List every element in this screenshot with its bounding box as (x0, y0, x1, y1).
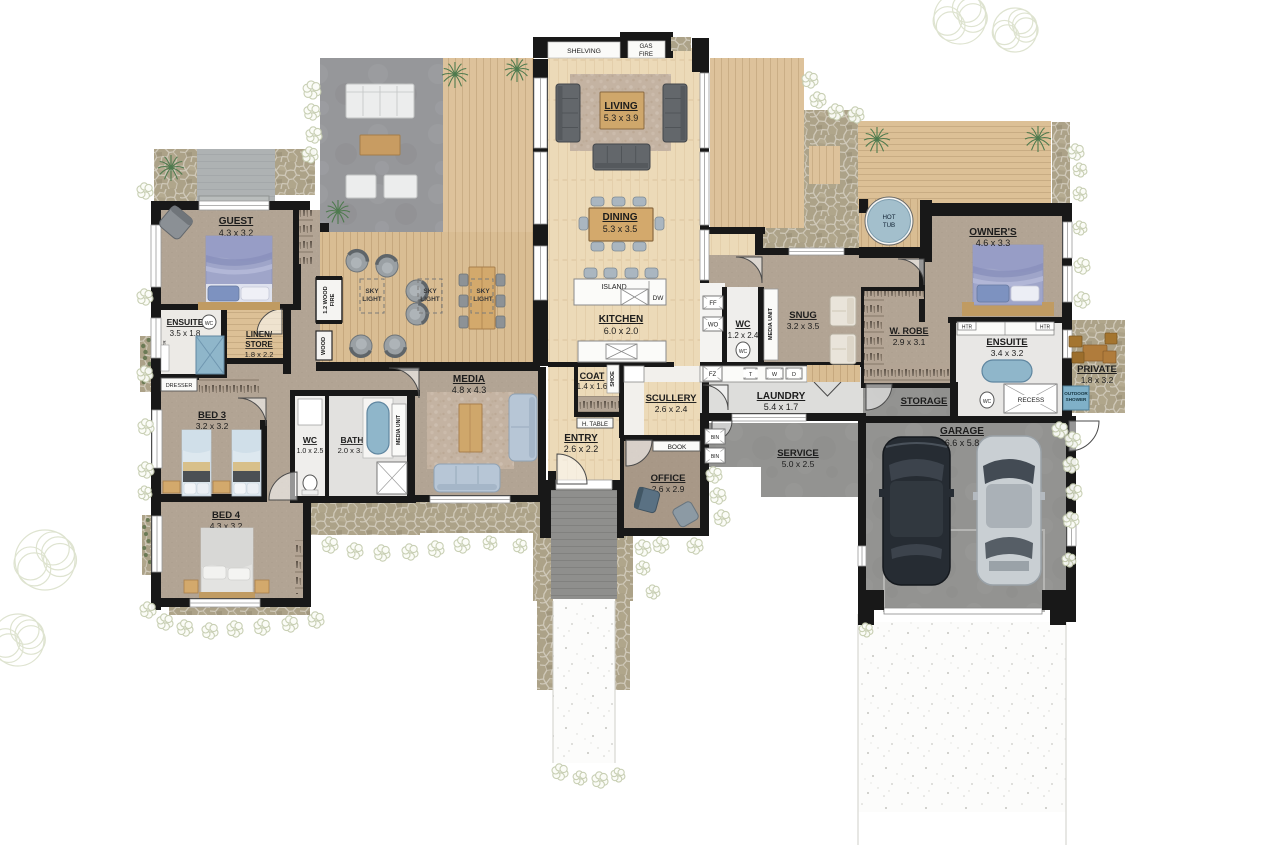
svg-text:FZ: FZ (709, 372, 717, 378)
svg-text:5.4 x 1.7: 5.4 x 1.7 (764, 402, 799, 412)
svg-text:WC: WC (983, 399, 992, 405)
svg-text:SNUG: SNUG (789, 310, 816, 321)
svg-text:BIN: BIN (711, 454, 720, 460)
svg-text:TUB: TUB (883, 222, 895, 229)
svg-text:4.6 x 3.3: 4.6 x 3.3 (976, 238, 1011, 248)
svg-text:4.8 x 4.3: 4.8 x 4.3 (452, 385, 487, 395)
svg-text:ENSUITE: ENSUITE (986, 337, 1027, 348)
svg-text:MEDIA: MEDIA (453, 374, 485, 385)
svg-text:COAT: COAT (580, 371, 605, 381)
svg-text:BED 3: BED 3 (198, 410, 226, 421)
svg-text:BOOK: BOOK (668, 444, 687, 451)
svg-text:GUEST: GUEST (219, 216, 253, 227)
svg-text:1.0 x 2.5: 1.0 x 2.5 (297, 448, 324, 455)
svg-text:WC: WC (205, 321, 214, 327)
svg-text:BATH: BATH (341, 435, 364, 445)
svg-text:SKY: SKY (423, 288, 437, 295)
svg-text:6.0 x 2.0: 6.0 x 2.0 (604, 326, 639, 336)
svg-text:PRIVATE: PRIVATE (1077, 364, 1117, 375)
svg-text:ENSUITE: ENSUITE (167, 317, 204, 327)
svg-text:1.2 x 2.4: 1.2 x 2.4 (728, 331, 759, 340)
svg-text:BED 4: BED 4 (212, 510, 241, 521)
svg-text:OFFICE: OFFICE (651, 473, 686, 484)
svg-text:W: W (772, 372, 778, 378)
svg-text:6.6 x 5.8: 6.6 x 5.8 (945, 438, 980, 448)
svg-text:STORAGE: STORAGE (901, 396, 948, 407)
svg-text:H. TABLE: H. TABLE (582, 422, 608, 428)
svg-text:5.3 x 3.9: 5.3 x 3.9 (604, 113, 639, 123)
svg-text:FIRE: FIRE (639, 51, 653, 58)
svg-text:KITCHEN: KITCHEN (599, 314, 643, 325)
svg-text:LIGHT: LIGHT (420, 296, 440, 303)
svg-text:SHELVING: SHELVING (567, 48, 601, 55)
svg-text:5.3 x 3.5: 5.3 x 3.5 (603, 224, 638, 234)
svg-text:GAS: GAS (639, 43, 652, 50)
svg-text:SKY: SKY (476, 288, 490, 295)
svg-text:STORE: STORE (245, 340, 273, 349)
svg-text:WC: WC (736, 319, 751, 329)
svg-text:MEDIA UNIT: MEDIA UNIT (396, 414, 402, 445)
svg-text:DRESSER: DRESSER (166, 383, 193, 389)
svg-text:OWNER'S: OWNER'S (969, 227, 1017, 238)
svg-text:WC: WC (739, 349, 748, 355)
svg-text:SERVICE: SERVICE (777, 448, 819, 459)
svg-text:WOOD: WOOD (321, 337, 327, 355)
svg-text:1.2 WOOD: 1.2 WOOD (323, 286, 329, 313)
svg-text:FIRE: FIRE (330, 293, 336, 306)
svg-text:RECESS: RECESS (1018, 397, 1045, 404)
svg-text:1.8 x 2.2: 1.8 x 2.2 (245, 350, 274, 359)
svg-text:3.4 x 3.2: 3.4 x 3.2 (991, 348, 1024, 358)
svg-text:SHOWER: SHOWER (1066, 397, 1087, 402)
svg-text:SKY: SKY (365, 288, 379, 295)
svg-text:LIGHT: LIGHT (473, 296, 493, 303)
svg-text:D: D (792, 372, 796, 378)
svg-text:DW: DW (653, 295, 665, 302)
svg-text:BIN: BIN (711, 435, 720, 441)
svg-text:SCULLERY: SCULLERY (646, 393, 698, 404)
svg-text:HTR: HTR (962, 325, 973, 331)
svg-text:1.8 x 3.2: 1.8 x 3.2 (1081, 375, 1114, 385)
svg-text:2.6 x 2.4: 2.6 x 2.4 (655, 404, 688, 414)
svg-text:2.9 x 3.1: 2.9 x 3.1 (893, 337, 926, 347)
svg-text:OUTDOOR: OUTDOOR (1064, 391, 1088, 396)
svg-text:LIVING: LIVING (604, 101, 638, 112)
svg-text:ENTRY: ENTRY (564, 433, 598, 444)
svg-text:1.4 x 1.6: 1.4 x 1.6 (577, 382, 608, 391)
svg-text:HOT: HOT (882, 214, 895, 221)
svg-text:SHOE: SHOE (610, 371, 616, 387)
svg-text:2.6 x 2.2: 2.6 x 2.2 (564, 444, 599, 454)
svg-text:MEDIA UNIT: MEDIA UNIT (768, 307, 774, 340)
svg-text:DINING: DINING (603, 212, 638, 223)
svg-text:LAUNDRY: LAUNDRY (757, 391, 806, 402)
svg-text:5.0 x 2.5: 5.0 x 2.5 (782, 459, 815, 469)
svg-text:LIGHT: LIGHT (362, 296, 382, 303)
svg-text:GARAGE: GARAGE (940, 426, 984, 437)
svg-text:3.2 x 3.5: 3.2 x 3.5 (787, 321, 820, 331)
svg-text:LINEN/: LINEN/ (246, 330, 273, 339)
svg-text:W. ROBE: W. ROBE (889, 326, 928, 336)
svg-text:WO: WO (708, 323, 719, 329)
svg-text:WC: WC (303, 435, 317, 445)
svg-text:2.0 x 3.2: 2.0 x 3.2 (338, 446, 367, 455)
svg-text:3.2 x 3.2: 3.2 x 3.2 (196, 421, 229, 431)
svg-text:FF: FF (709, 301, 717, 307)
svg-text:HTR: HTR (1040, 325, 1051, 331)
